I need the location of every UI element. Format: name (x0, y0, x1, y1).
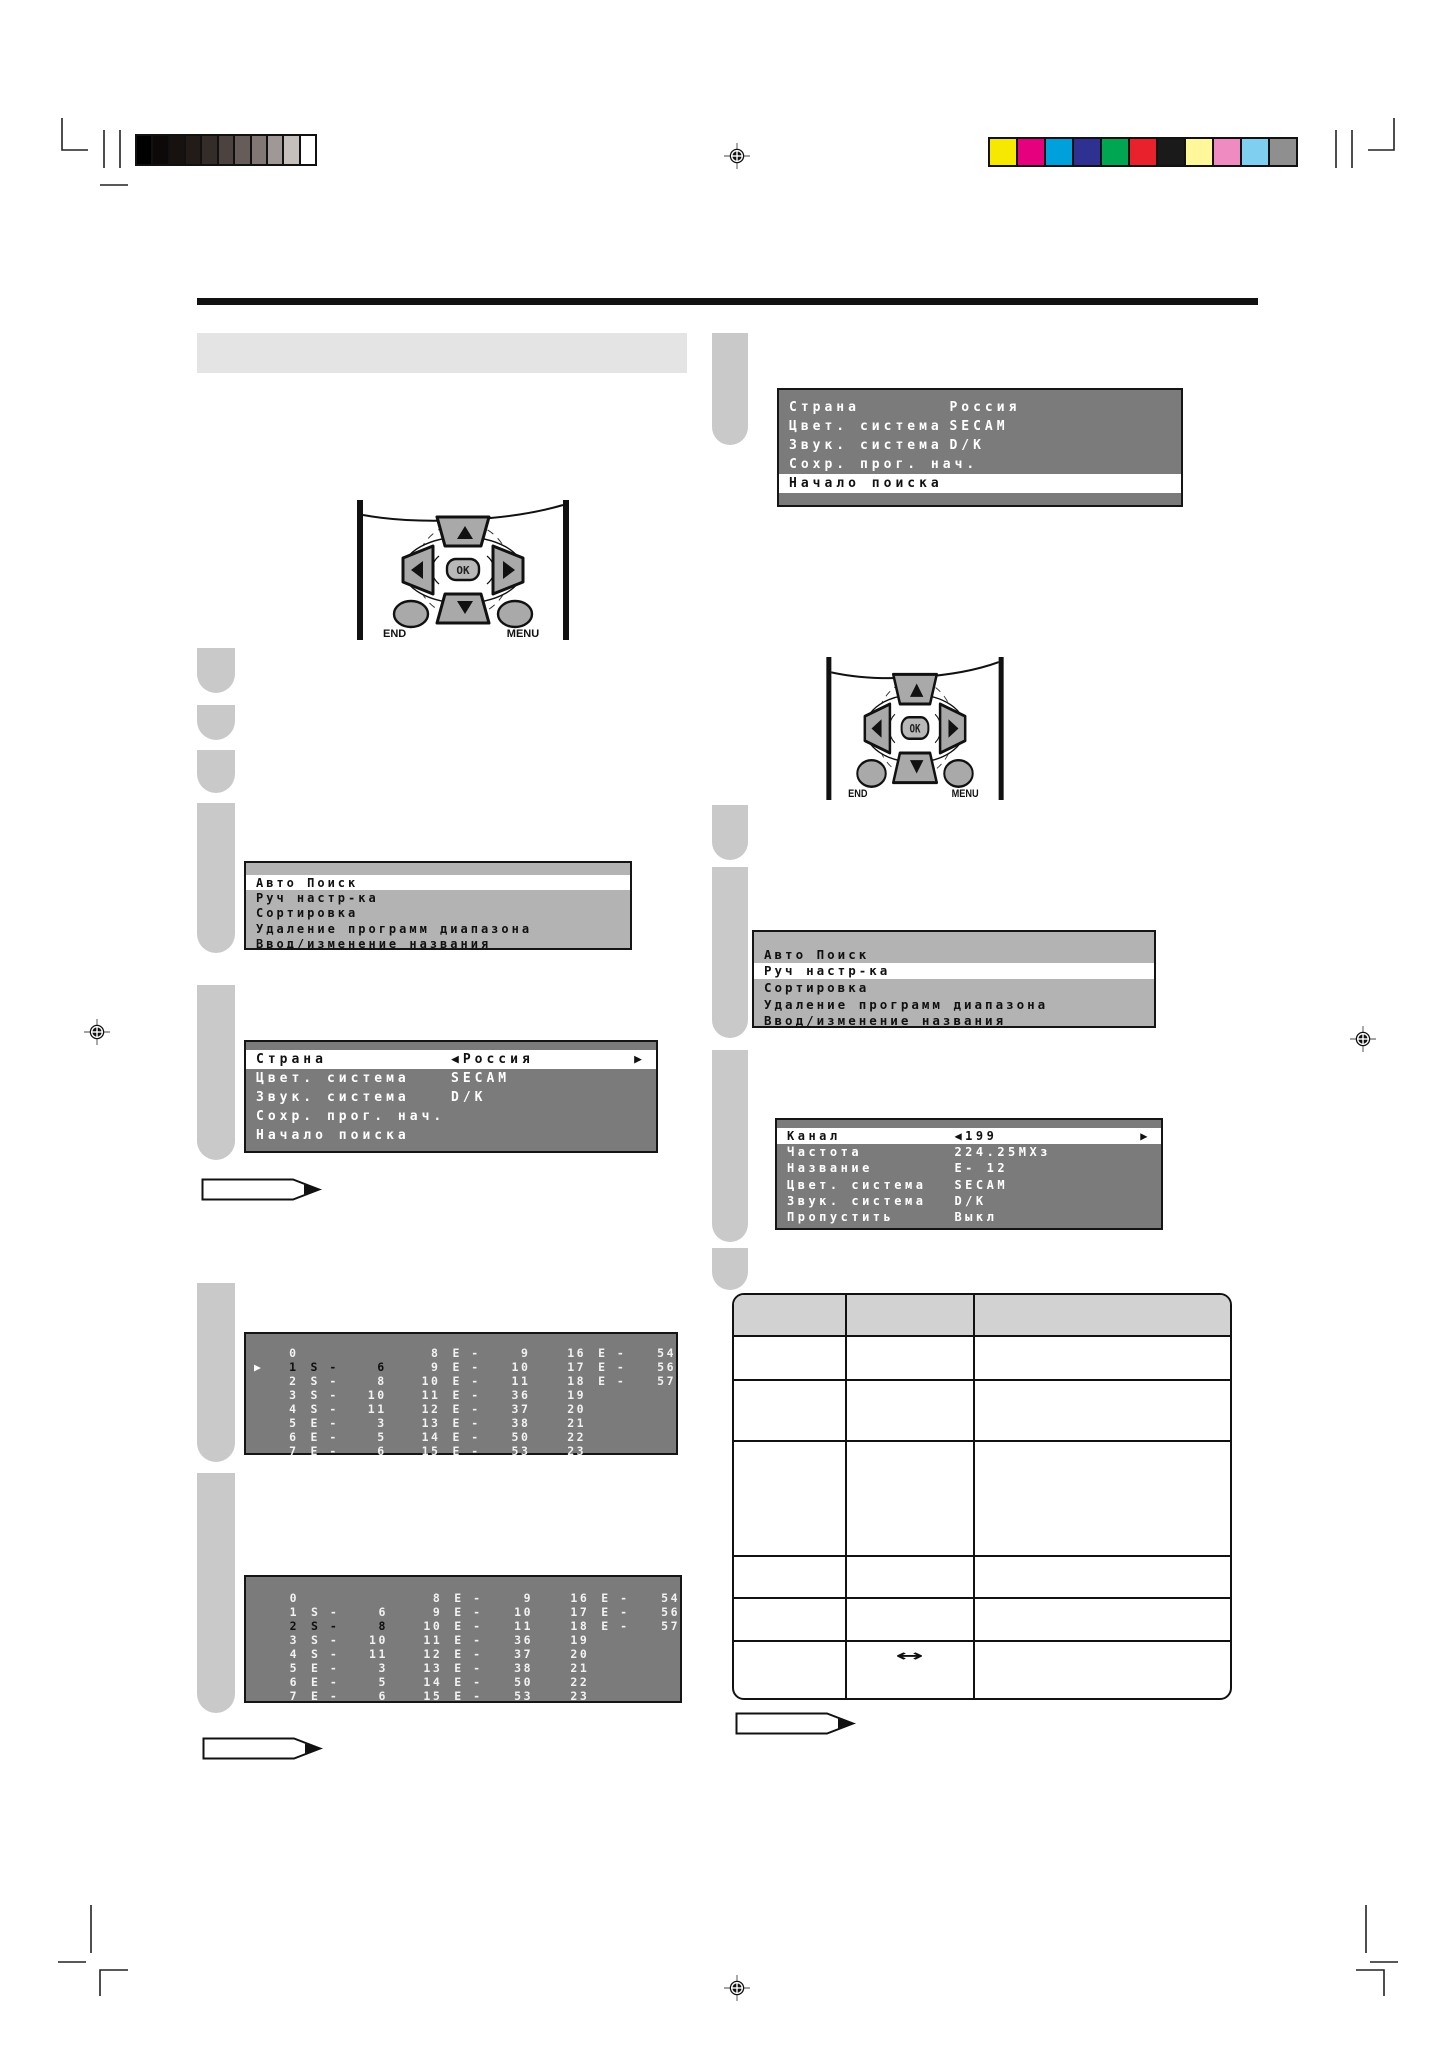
channel-grid-cell: 3 (274, 1388, 298, 1402)
grayscale-swatch (153, 136, 169, 164)
channel-grid-row: 2S -810E -1118E -57 (246, 1619, 680, 1633)
menu-row: Звук. системаD/K (246, 1088, 656, 1107)
menu-row: Ввод/изменение названия (754, 1012, 1154, 1029)
menu-item-label: Звук. система (256, 1090, 451, 1105)
menu-item-label: Удаление программ диапазона (256, 922, 438, 936)
channel-grid-cell: 6 (354, 1689, 388, 1703)
table-row (734, 1597, 1230, 1640)
manual-page: OK END MENU OK END MENU СтранаРоссияЦвет… (0, 0, 1456, 2064)
menu-row: ПропуститьВыкл (777, 1209, 1161, 1225)
menu-row: Начало поиска (779, 474, 1181, 493)
menu-spacer-row (754, 932, 1154, 946)
channel-grid-cell: 5 (275, 1661, 299, 1675)
channel-grid-cell: 3 (354, 1661, 388, 1675)
channel-grid-cell: E - (442, 1619, 497, 1633)
osd-country-select-screen: Страна◀Россия▶Цвет. системаSECAMЗвук. си… (244, 1040, 658, 1153)
grayscale-swatch (235, 136, 251, 164)
channel-grid-cell: 18 (533, 1619, 589, 1633)
step-marker (712, 805, 748, 860)
menu-button (944, 760, 972, 787)
channel-grid-cell: 2 (274, 1374, 298, 1388)
channel-grid-cell: E - (589, 1605, 644, 1619)
channel-grid-cell: 17 (530, 1360, 586, 1374)
note-arrow-icon (201, 1178, 323, 1201)
channel-grid-cell: E - (440, 1444, 495, 1458)
channel-grid-cell: 19 (533, 1633, 589, 1647)
channel-grid-cell: E - (586, 1374, 641, 1388)
note-arrow-icon (735, 1712, 857, 1735)
menu-row: Цвет. системаSECAM (246, 1069, 656, 1088)
channel-grid-cell: 15 (387, 1444, 441, 1458)
channel-grid-cell: 54 (644, 1591, 680, 1605)
step-marker (712, 867, 748, 1038)
menu-item-label: Цвет. система (789, 419, 949, 434)
channel-grid-cell: 12 (387, 1402, 441, 1416)
channel-grid-cell: 50 (495, 1430, 530, 1444)
menu-row: Руч настр-ка (754, 963, 1154, 980)
end-button (394, 601, 428, 627)
menu-item-label: Страна (789, 400, 949, 415)
end-button-label: END (383, 628, 406, 640)
step-marker (712, 333, 748, 445)
channel-grid-cell: E - (442, 1661, 497, 1675)
channel-grid-cell: 10 (495, 1360, 530, 1374)
menu-item-label: Звук. система (789, 438, 949, 453)
channel-grid-cell: 8 (387, 1346, 441, 1360)
channel-grid-cell: 1 (275, 1605, 299, 1619)
menu-row: Авто Поиск (246, 875, 630, 890)
channel-grid-cell: 5 (274, 1416, 298, 1430)
channel-grid-cell: 15 (388, 1689, 442, 1703)
channel-grid-cell: 54 (641, 1346, 676, 1360)
menu-item-label: Начало поиска (789, 476, 949, 491)
menu-row: СтранаРоссия (779, 398, 1181, 417)
channel-grid-cell: 10 (497, 1605, 533, 1619)
table-header-cell (734, 1295, 845, 1335)
channel-grid-cell: E - (589, 1591, 644, 1605)
menu-item-label: Сортировка (256, 906, 438, 920)
menu-item-value: D/K (954, 1194, 986, 1208)
channel-grid-cell: 57 (644, 1619, 680, 1633)
channel-grid-cell: E - (299, 1661, 354, 1675)
grayscale-swatch (268, 136, 284, 164)
remote-right-edge (563, 500, 569, 640)
channel-grid-cell: 17 (533, 1605, 589, 1619)
color-swatch (1130, 139, 1158, 165)
channel-grid-row: 6E -514E -5022 (246, 1675, 680, 1689)
grayscale-swatch (170, 136, 186, 164)
channel-grid-cell: 14 (387, 1430, 441, 1444)
menu-row: Канал◀199▶ (777, 1128, 1161, 1144)
channel-grid-row: 7E -615E -5323 (246, 1444, 676, 1458)
menu-item-label: Канал (787, 1129, 954, 1143)
menu-item-label: Ввод/изменение названия (764, 1013, 954, 1028)
menu-item-value: D/K (949, 438, 984, 453)
menu-row: Сохр. прог. нач. (246, 1107, 656, 1126)
menu-row: Сортировка (754, 979, 1154, 996)
channel-grid-cell: 11 (497, 1619, 533, 1633)
menu-row: Звук. системаD/K (777, 1193, 1161, 1209)
menu-row: Страна◀Россия▶ (246, 1050, 656, 1069)
table-header-cell (973, 1295, 1230, 1335)
menu-item-label: Руч настр-ка (256, 891, 438, 905)
channel-grid-cell: 2 (275, 1619, 299, 1633)
channel-grid-cell: 3 (353, 1416, 386, 1430)
step-marker (197, 803, 235, 953)
menu-row: Авто Поиск (754, 946, 1154, 963)
step-marker (712, 1248, 748, 1290)
channel-grid-cell: 3 (275, 1633, 299, 1647)
channel-grid-cell: E - (440, 1346, 495, 1360)
channel-grid-cell: 6 (354, 1605, 388, 1619)
channel-grid-cell: E - (589, 1619, 644, 1633)
reference-table: ↔ (732, 1293, 1232, 1700)
channel-grid-cell: S - (299, 1619, 354, 1633)
menu-row: Цвет. системаSECAM (777, 1177, 1161, 1193)
table-header-row (734, 1295, 1230, 1335)
channel-grid-row: 3S -1011E -3619 (246, 1633, 680, 1647)
menu-item-value: D/K (451, 1090, 486, 1105)
channel-grid-row: 1S -69E -1017E -56 (246, 1605, 680, 1619)
channel-grid-cell: E - (442, 1689, 497, 1703)
channel-grid-cell: 38 (495, 1416, 530, 1430)
menu-item-value: SECAM (451, 1071, 510, 1086)
remote-control-illustration: OK END MENU (353, 500, 573, 640)
grayscale-calibration-bar (135, 134, 317, 166)
channel-grid-cell: 9 (495, 1346, 530, 1360)
channel-grid-cell: 4 (274, 1402, 298, 1416)
grayscale-swatch (186, 136, 202, 164)
menu-spacer-row (246, 863, 630, 875)
left-arrow-icon: ◀ (451, 1052, 463, 1067)
menu-item-label: Сортировка (764, 980, 954, 995)
channel-grid-cell: 22 (533, 1675, 589, 1689)
channel-grid-cell: E - (299, 1416, 354, 1430)
end-button (857, 760, 885, 787)
channel-grid-cell: S - (299, 1402, 354, 1416)
channel-grid-cell: S - (299, 1374, 354, 1388)
channel-grid-cell: 50 (497, 1675, 533, 1689)
menu-item-label: Ввод/изменение названия (256, 937, 438, 951)
channel-grid-cell: S - (299, 1647, 354, 1661)
channel-grid-cell: E - (440, 1388, 495, 1402)
osd-channel-grid-screen: 08E -916E -54▶1S -69E -1017E -562S -810E… (244, 1332, 678, 1455)
channel-grid-row: 4S -1112E -3720 (246, 1647, 680, 1661)
channel-grid-cell: 13 (387, 1416, 441, 1430)
channel-grid-cell: 5 (353, 1430, 386, 1444)
channel-grid-cell: E - (440, 1374, 495, 1388)
channel-grid-cell: E - (442, 1605, 497, 1619)
channel-grid-cell: 16 (530, 1346, 586, 1360)
menu-item-value: E- 12 (954, 1161, 1008, 1175)
channel-grid-cell: E - (442, 1647, 497, 1661)
color-swatch (1270, 139, 1296, 165)
channel-grid-cell: E - (442, 1633, 497, 1647)
channel-grid-cell: 9 (497, 1591, 533, 1605)
channel-grid-cell: 53 (495, 1444, 530, 1458)
menu-item-label: Удаление программ диапазона (764, 997, 954, 1012)
menu-item-label: Название (787, 1161, 954, 1175)
registration-mark (1350, 1026, 1376, 1052)
osd-main-menu-screen: Авто ПоискРуч настр-каСортировкаУдаление… (752, 930, 1156, 1028)
channel-grid-row: 2S -810E -1118E -57 (246, 1374, 676, 1388)
channel-grid-cell: 37 (495, 1402, 530, 1416)
color-swatch (1186, 139, 1214, 165)
channel-grid-cell: E - (440, 1402, 495, 1416)
channel-grid-cell: 56 (644, 1605, 680, 1619)
channel-grid-cell: 0 (275, 1591, 299, 1605)
channel-grid-cell: 53 (497, 1689, 533, 1703)
osd-main-menu-screen: Авто ПоискРуч настр-каСортировкаУдаление… (244, 861, 632, 950)
channel-grid-cell: 23 (530, 1444, 586, 1458)
channel-grid-cell: E - (299, 1430, 354, 1444)
channel-grid-cell: 12 (388, 1647, 442, 1661)
channel-grid-cell: 4 (275, 1647, 299, 1661)
menu-item-label: Частота (787, 1145, 954, 1159)
channel-grid-cell: 16 (533, 1591, 589, 1605)
channel-grid-row: 7E -615E -5323 (246, 1689, 680, 1703)
channel-grid-row: 5E -313E -3821 (246, 1416, 676, 1430)
channel-grid-cell: 6 (274, 1430, 298, 1444)
menu-item-label: Звук. система (787, 1194, 954, 1208)
osd-channel-grid-screen: 08E -916E -541S -69E -1017E -562S -810E … (244, 1575, 682, 1703)
channel-grid-cell: E - (440, 1360, 495, 1374)
channel-grid-row: 3S -1011E -3619 (246, 1388, 676, 1402)
channel-grid-cell: S - (299, 1360, 354, 1374)
grayscale-swatch (301, 136, 315, 164)
channel-grid-row: 5E -313E -3821 (246, 1661, 680, 1675)
menu-item-label: Сохр. прог. нач. (256, 1109, 451, 1124)
channel-grid-cell: 7 (275, 1689, 299, 1703)
menu-item-value: Россия (949, 400, 1020, 415)
channel-grid-cell: 20 (533, 1647, 589, 1661)
channel-grid-cell: E - (299, 1689, 354, 1703)
menu-item-label: Пропустить (787, 1210, 954, 1224)
menu-item-value: SECAM (954, 1178, 1008, 1192)
table-row (734, 1555, 1230, 1597)
channel-grid-cell: 10 (354, 1633, 388, 1647)
menu-row: Ввод/изменение названия (246, 937, 630, 952)
channel-grid-cell: 0 (274, 1346, 298, 1360)
channel-grid-cell: 38 (497, 1661, 533, 1675)
grayscale-swatch (202, 136, 218, 164)
step-marker (197, 1473, 235, 1713)
color-swatch (1242, 139, 1270, 165)
channel-grid-cell: 9 (388, 1605, 442, 1619)
channel-grid-cell: 5 (354, 1675, 388, 1689)
channel-grid-cell: 11 (388, 1633, 442, 1647)
step-marker (197, 648, 235, 693)
channel-grid-cell: E - (299, 1444, 354, 1458)
end-button-label: END (848, 788, 867, 800)
channel-grid-cell: 56 (641, 1360, 676, 1374)
menu-row: Сортировка (246, 906, 630, 921)
channel-grid-cell: 21 (530, 1416, 586, 1430)
channel-grid-cell: 8 (388, 1591, 442, 1605)
channel-grid-cell: 8 (353, 1374, 386, 1388)
step-marker (712, 1050, 748, 1242)
grayscale-swatch (252, 136, 268, 164)
channel-grid-cell: E - (440, 1430, 495, 1444)
color-swatch (1074, 139, 1102, 165)
channel-grid-cell: 20 (530, 1402, 586, 1416)
channel-grid-cell: E - (442, 1675, 497, 1689)
menu-item-label: Сохр. прог. нач. (789, 457, 949, 472)
channel-grid-row: 08E -916E -54 (246, 1591, 680, 1605)
channel-grid-row: 4S -1112E -3720 (246, 1402, 676, 1416)
channel-grid-cell: 14 (388, 1675, 442, 1689)
step-marker (197, 1283, 235, 1462)
menu-item-label: Авто Поиск (256, 876, 438, 890)
step-marker (197, 750, 235, 793)
channel-grid-row: 08E -916E -54 (246, 1346, 676, 1360)
menu-item-label: Руч настр-ка (764, 963, 954, 978)
menu-item-label: Авто Поиск (764, 947, 954, 962)
channel-grid-cell: E - (299, 1675, 354, 1689)
channel-grid-row: 6E -514E -5022 (246, 1430, 676, 1444)
menu-row: Цвет. системаSECAM (779, 417, 1181, 436)
step-marker (197, 705, 235, 740)
channel-grid-cell: E - (586, 1360, 641, 1374)
menu-item-label: Страна (256, 1052, 451, 1067)
channel-grid-cell: 36 (495, 1388, 530, 1402)
channel-grid-cell: 6 (353, 1360, 386, 1374)
channel-grid-cell: 7 (274, 1444, 298, 1458)
channel-grid-cell: 11 (354, 1647, 388, 1661)
table-row (734, 1335, 1230, 1379)
grayscale-swatch (137, 136, 153, 164)
left-arrow-icon: ◀ (954, 1129, 965, 1143)
menu-row: Удаление программ диапазона (246, 921, 630, 936)
menu-row: Удаление программ диапазона (754, 996, 1154, 1013)
menu-item-label: Начало поиска (256, 1128, 451, 1143)
color-swatch (1102, 139, 1130, 165)
table-row (734, 1379, 1230, 1440)
channel-grid-cell: 8 (354, 1619, 388, 1633)
channel-grid-cell: 57 (641, 1374, 676, 1388)
step-marker (197, 985, 235, 1160)
menu-button-label: MENU (952, 788, 979, 800)
channel-grid-cell: 18 (530, 1374, 586, 1388)
menu-row: Частота224.25МХз (777, 1144, 1161, 1160)
osd-search-start-screen: СтранаРоссияЦвет. системаSECAMЗвук. сист… (777, 388, 1183, 507)
registration-mark (724, 143, 750, 169)
left-right-arrow-icon: ↔ (896, 1646, 924, 1665)
menu-row: Звук. системаD/K (779, 436, 1181, 455)
table-header-cell (845, 1295, 973, 1335)
remote-left-edge (357, 500, 363, 640)
channel-grid-cell: 22 (530, 1430, 586, 1444)
section-title-bar (197, 333, 687, 373)
channel-grid-cell: E - (442, 1591, 497, 1605)
menu-item-value: SECAM (949, 419, 1008, 434)
color-swatch (1214, 139, 1242, 165)
right-arrow-icon: ▶ (1140, 1129, 1151, 1143)
channel-grid-cell: 1 (274, 1360, 298, 1374)
channel-grid-cell: 9 (387, 1360, 441, 1374)
channel-grid-cell: 11 (353, 1402, 386, 1416)
channel-grid-cell: 6 (353, 1444, 386, 1458)
remote-control-illustration: OK END MENU (823, 657, 1007, 800)
channel-grid-cell: E - (440, 1416, 495, 1430)
right-arrow-icon: ▶ (634, 1052, 646, 1067)
table-row: ↔ (734, 1640, 1230, 1700)
channel-grid-cell: 10 (353, 1388, 386, 1402)
channel-grid-cell: S - (299, 1633, 354, 1647)
menu-item-value: Выкл (954, 1210, 997, 1224)
channel-grid-cell: 37 (497, 1647, 533, 1661)
ok-button-label: OK (909, 723, 921, 736)
grayscale-swatch (219, 136, 235, 164)
registration-mark (724, 1975, 750, 2001)
color-swatch (1018, 139, 1046, 165)
color-swatch (1046, 139, 1074, 165)
channel-grid-cell: 19 (530, 1388, 586, 1402)
channel-grid-cell: 11 (495, 1374, 530, 1388)
channel-grid-cell: S - (299, 1388, 354, 1402)
table-row (734, 1440, 1230, 1555)
menu-item-label: Цвет. система (787, 1178, 954, 1192)
color-swatch (1158, 139, 1186, 165)
channel-grid-cell: 6 (275, 1675, 299, 1689)
channel-grid-cell: 36 (497, 1633, 533, 1647)
channel-grid-cell: 23 (533, 1689, 589, 1703)
note-arrow-icon (202, 1737, 324, 1760)
color-calibration-bar (988, 137, 1298, 167)
menu-row: Руч настр-ка (246, 890, 630, 905)
menu-row: Сохр. прог. нач. (779, 455, 1181, 474)
section-rule (197, 298, 1258, 305)
grayscale-swatch (284, 136, 300, 164)
channel-grid-cell: 10 (387, 1374, 441, 1388)
cursor-arrow-icon: ▶ (254, 1360, 274, 1374)
color-swatch (990, 139, 1018, 165)
channel-grid-cell: E - (586, 1346, 641, 1360)
channel-grid-row: ▶1S -69E -1017E -56 (246, 1360, 676, 1374)
channel-grid-cell: 11 (387, 1388, 441, 1402)
menu-item-value: 224.25МХз (954, 1145, 1051, 1159)
channel-grid-cell: 13 (388, 1661, 442, 1675)
menu-button-label: MENU (507, 628, 539, 640)
menu-item-value: 199 (965, 1129, 997, 1143)
osd-manual-tune-screen: Канал◀199▶Частота224.25МХзНазваниеE- 12Ц… (775, 1118, 1163, 1230)
menu-button (498, 601, 532, 627)
menu-item-value: Россия (463, 1052, 534, 1067)
ok-button-label: OK (456, 564, 470, 577)
channel-grid-cell: S - (299, 1605, 354, 1619)
registration-mark (84, 1019, 110, 1045)
channel-grid-cell: 21 (533, 1661, 589, 1675)
channel-grid-cell: 10 (388, 1619, 442, 1633)
menu-row: НазваниеE- 12 (777, 1160, 1161, 1176)
menu-item-label: Цвет. система (256, 1071, 451, 1086)
menu-row: Начало поиска (246, 1126, 656, 1145)
